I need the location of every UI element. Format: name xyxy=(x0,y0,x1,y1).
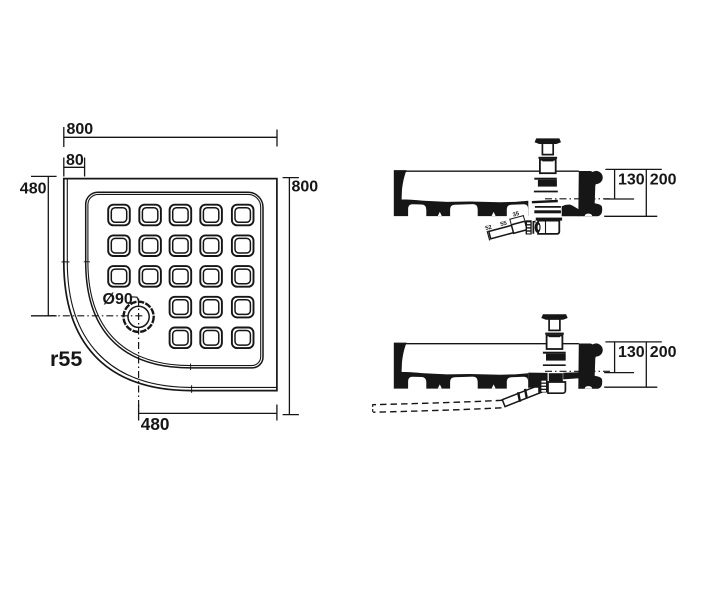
svg-text:200: 200 xyxy=(650,344,677,361)
svg-text:Ø90: Ø90 xyxy=(103,291,133,308)
svg-text:480: 480 xyxy=(141,414,170,434)
svg-text:800: 800 xyxy=(67,121,94,138)
svg-text:480: 480 xyxy=(20,181,47,198)
svg-text:800: 800 xyxy=(292,179,319,196)
svg-text:130: 130 xyxy=(618,172,645,189)
svg-text:80: 80 xyxy=(66,152,84,169)
svg-text:200: 200 xyxy=(650,172,677,189)
svg-text:130: 130 xyxy=(618,344,645,361)
svg-text:r55: r55 xyxy=(50,347,82,371)
